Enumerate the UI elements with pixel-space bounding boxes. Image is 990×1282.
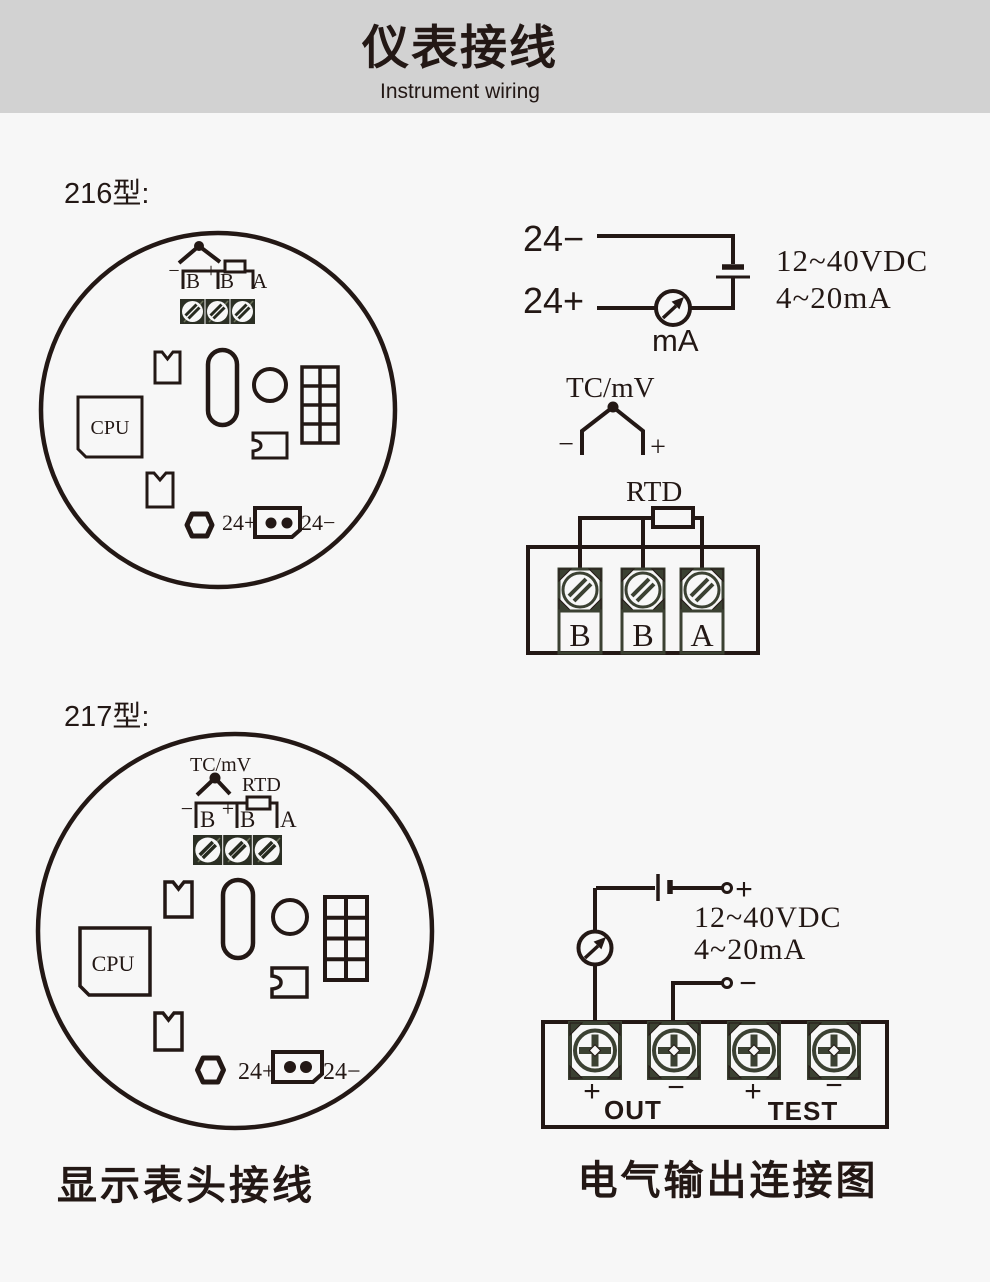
power-plus-label: 24+	[222, 510, 256, 535]
ammeter-217	[579, 932, 612, 965]
cpu-label: CPU	[91, 417, 130, 439]
terminal-minus-label: −	[181, 796, 193, 821]
terminal-b2-label: B	[220, 269, 234, 293]
component-capacitor	[223, 880, 253, 958]
terminal-b1-label: B	[186, 269, 200, 293]
out-plus-label: +	[583, 1075, 601, 1108]
rtd-terminal-diagram: RTD B B A	[528, 476, 758, 653]
cpu-label: CPU	[92, 951, 135, 976]
tc-mv-label: TC/mV	[566, 372, 655, 404]
out-label: OUT	[604, 1095, 662, 1125]
component-crystal	[165, 882, 192, 917]
page-subtitle: Instrument wiring	[380, 80, 540, 103]
screw-terminal-b1	[559, 569, 601, 611]
screw-terminal-b2	[622, 569, 664, 611]
pcb-216-diagram: − + B B A CPU	[41, 233, 395, 587]
model-216-label: 216型:	[64, 177, 149, 210]
screw-terminal	[207, 301, 228, 322]
pcb-217-diagram: TC/mV RTD − + B B A	[38, 734, 432, 1128]
rtd-resistor-symbol	[653, 508, 693, 527]
page-header: 仪表接线 Instrument wiring	[0, 0, 990, 113]
mounting-nut	[198, 1058, 224, 1082]
component-crystal	[155, 352, 180, 383]
tc-sensor-symbol: TC/mV − +	[558, 372, 666, 463]
battery-symbol-217	[658, 874, 670, 901]
rtd-label: RTD	[242, 774, 281, 796]
tc-plus-label: +	[650, 432, 666, 463]
minus-terminal-dot	[723, 979, 732, 988]
plus-terminal-dot	[723, 884, 732, 893]
component-notched	[272, 968, 307, 997]
current-loop-216-diagram: 24− 24+ mA 12~40VDC 4~20mA	[523, 218, 928, 358]
loop-24pos-label: 24+	[523, 280, 584, 321]
rtd-terminal-b2-label: B	[632, 617, 653, 653]
loop-voltage-spec: 12~40VDC	[776, 243, 928, 278]
screw-terminal	[225, 838, 250, 863]
rtd-terminal-a-label: A	[690, 617, 713, 653]
loop-wire-neg	[597, 236, 733, 264]
power-minus-label: 24−	[301, 510, 335, 535]
component-notched	[253, 433, 287, 458]
screw-terminal	[232, 301, 253, 322]
tc-mv-label: TC/mV	[190, 754, 252, 776]
power-connector-216	[255, 508, 300, 537]
loop-wire-pos-right	[691, 277, 733, 308]
output-current-spec: 4~20mA	[694, 933, 806, 966]
component-crystal	[147, 473, 173, 507]
pcb-217-outline	[38, 734, 432, 1128]
test-minus-label: −	[825, 1069, 843, 1102]
component-connector-grid	[302, 367, 338, 443]
ammeter-216	[656, 291, 690, 325]
tc-minus-label: −	[558, 429, 574, 460]
output-minus-label: −	[739, 967, 757, 1000]
screw-terminal-block-217	[193, 835, 282, 865]
battery-symbol-216	[716, 267, 750, 277]
power-connector-217	[273, 1052, 322, 1082]
out-minus-label: −	[667, 1071, 685, 1104]
wiring-diagram-canvas: 仪表接线 Instrument wiring 216型: − + B B A	[0, 0, 990, 1282]
cpu-chip-216: CPU	[78, 397, 142, 457]
terminal-plus-label: +	[205, 260, 216, 282]
terminal-minus-label: −	[168, 260, 179, 282]
component-round	[273, 900, 307, 934]
terminal-b2-label: B	[240, 807, 255, 832]
ammeter-ma-label: mA	[652, 323, 699, 358]
model-217-label: 217型:	[64, 700, 149, 733]
screw-terminal-out-minus	[649, 1023, 699, 1078]
output-connection-217-diagram: + 12~40VDC 4~20mA − + OUT − + TEST −	[543, 873, 887, 1127]
component-round	[254, 369, 286, 401]
screw-terminal	[255, 838, 280, 863]
screw-terminal-out-plus	[570, 1023, 620, 1078]
cpu-chip-217: CPU	[80, 928, 150, 995]
component-connector-grid	[325, 897, 367, 980]
test-plus-label: +	[744, 1075, 762, 1108]
screw-terminal-a	[681, 569, 723, 611]
screw-terminal	[195, 838, 220, 863]
screw-terminal	[182, 301, 203, 322]
terminal-b1-label: B	[200, 807, 215, 832]
caption-electrical-output: 电气输出连接图	[578, 1158, 879, 1203]
loop-current-spec: 4~20mA	[776, 280, 892, 315]
rtd-label: RTD	[626, 476, 682, 508]
screw-terminal-test-plus	[729, 1023, 779, 1078]
mounting-nut	[187, 514, 212, 536]
output-voltage-spec: 12~40VDC	[694, 901, 842, 934]
power-minus-label: 24−	[323, 1059, 361, 1085]
caption-display-head-wiring: 显示表头接线	[57, 1163, 315, 1208]
instrument-wiring-sheet: 仪表接线 Instrument wiring 216型: − + B B A	[0, 0, 990, 1282]
terminal-a-label: A	[280, 807, 297, 832]
screw-terminal-block-216	[180, 299, 255, 324]
component-capacitor	[208, 350, 237, 425]
terminal-plus-label: +	[222, 796, 234, 821]
loop-24neg-label: 24−	[523, 218, 584, 259]
power-plus-label: 24+	[238, 1059, 276, 1085]
page-title: 仪表接线	[361, 21, 558, 74]
rtd-terminal-b1-label: B	[569, 617, 590, 653]
component-crystal	[155, 1013, 182, 1050]
terminal-a-label: A	[252, 269, 268, 293]
